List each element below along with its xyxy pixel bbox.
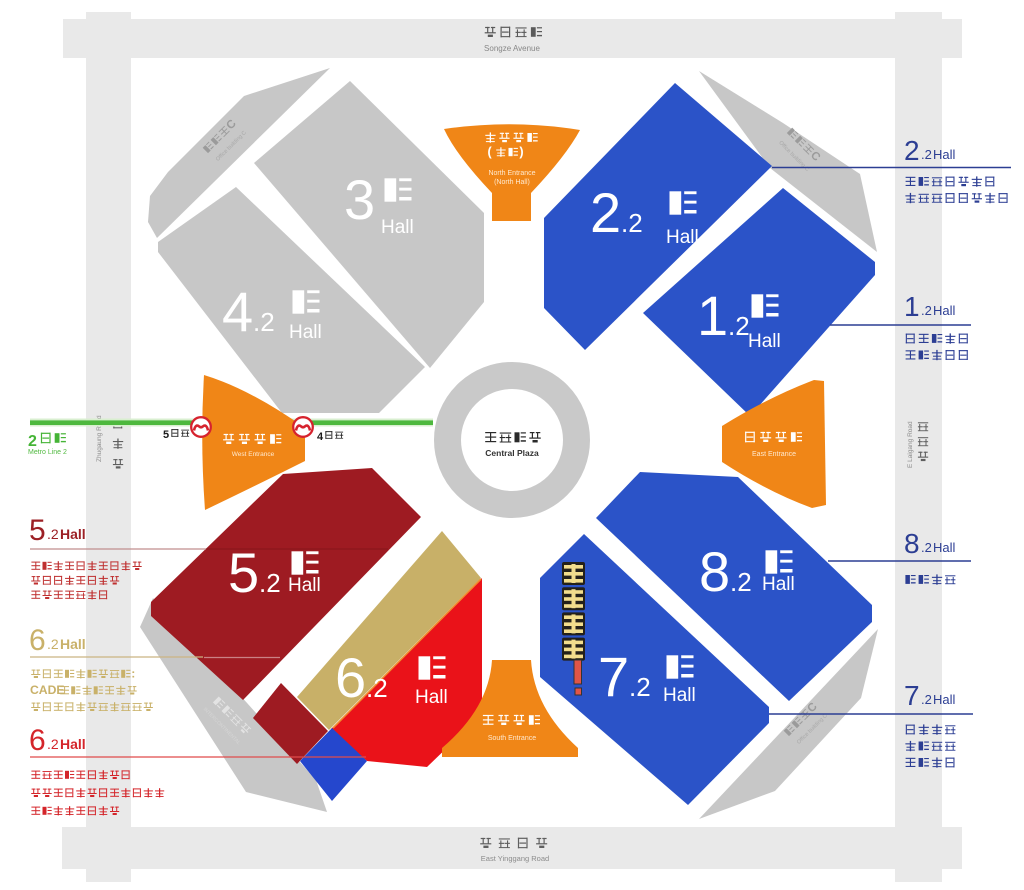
svg-text:.2: .2	[47, 736, 59, 752]
svg-text:2: 2	[28, 433, 37, 450]
svg-text:.2: .2	[259, 568, 281, 598]
svg-text:.2: .2	[921, 147, 932, 162]
svg-text:1: 1	[904, 291, 920, 322]
svg-text:5: 5	[29, 514, 46, 547]
svg-text:Hall: Hall	[933, 303, 956, 318]
svg-text:Hall: Hall	[415, 687, 448, 708]
svg-text:West Entrance: West Entrance	[232, 451, 275, 458]
svg-text:.2: .2	[921, 303, 932, 318]
svg-text:Hall: Hall	[748, 331, 781, 352]
svg-text:8: 8	[699, 540, 730, 603]
svg-text:Hall: Hall	[289, 322, 322, 343]
svg-text:East Yinggang Road: East Yinggang Road	[481, 854, 549, 863]
svg-text:.2: .2	[728, 311, 750, 341]
svg-text:East Entrance: East Entrance	[752, 451, 796, 458]
svg-text:6: 6	[29, 724, 46, 757]
svg-text:Hall: Hall	[381, 217, 414, 238]
svg-text:.2: .2	[629, 672, 651, 702]
svg-text:Hall: Hall	[663, 685, 696, 706]
svg-text:6: 6	[335, 646, 366, 709]
svg-text:.2: .2	[47, 526, 59, 542]
svg-text:Metro Line 2: Metro Line 2	[28, 449, 67, 456]
svg-text:(North Hall): (North Hall)	[494, 179, 530, 186]
svg-text:.2: .2	[921, 540, 932, 555]
svg-text::: :	[131, 667, 135, 681]
svg-text:2: 2	[904, 135, 920, 166]
svg-text:4: 4	[222, 280, 253, 343]
svg-text:Hall: Hall	[288, 575, 321, 596]
svg-text:CADE: CADE	[30, 683, 65, 697]
svg-text:1: 1	[697, 284, 728, 347]
svg-text:.2: .2	[253, 307, 275, 337]
svg-text:5: 5	[163, 429, 169, 441]
svg-text:Hall: Hall	[60, 736, 86, 752]
svg-text:3: 3	[344, 168, 375, 231]
svg-text:.2: .2	[366, 673, 388, 703]
svg-text:South Entrance: South Entrance	[488, 735, 536, 742]
svg-text:.2: .2	[921, 692, 932, 707]
svg-text:E Laigang Road: E Laigang Road	[907, 421, 914, 468]
svg-text:7: 7	[598, 645, 629, 708]
svg-text:Hall: Hall	[762, 574, 795, 595]
svg-text:North Entrance: North Entrance	[488, 170, 535, 177]
svg-text:6: 6	[29, 624, 46, 657]
svg-text:Hall: Hall	[60, 526, 86, 542]
svg-text:): )	[519, 145, 523, 159]
svg-text:5: 5	[228, 541, 259, 604]
svg-text:Hall: Hall	[666, 227, 699, 248]
svg-text:Hall: Hall	[933, 692, 956, 707]
svg-text:7: 7	[904, 680, 920, 711]
svg-text:4: 4	[317, 431, 324, 443]
svg-text:Central Plaza: Central Plaza	[485, 448, 539, 458]
svg-text:2: 2	[590, 181, 621, 244]
svg-text:.2: .2	[730, 567, 752, 597]
svg-text:Hall: Hall	[933, 147, 956, 162]
svg-text:Songze Avenue: Songze Avenue	[484, 44, 540, 53]
svg-text:Hall: Hall	[60, 636, 86, 652]
svg-text:Hall: Hall	[933, 540, 956, 555]
svg-text:.2: .2	[47, 636, 59, 652]
svg-text:.2: .2	[621, 208, 643, 238]
svg-text:8: 8	[904, 528, 920, 559]
